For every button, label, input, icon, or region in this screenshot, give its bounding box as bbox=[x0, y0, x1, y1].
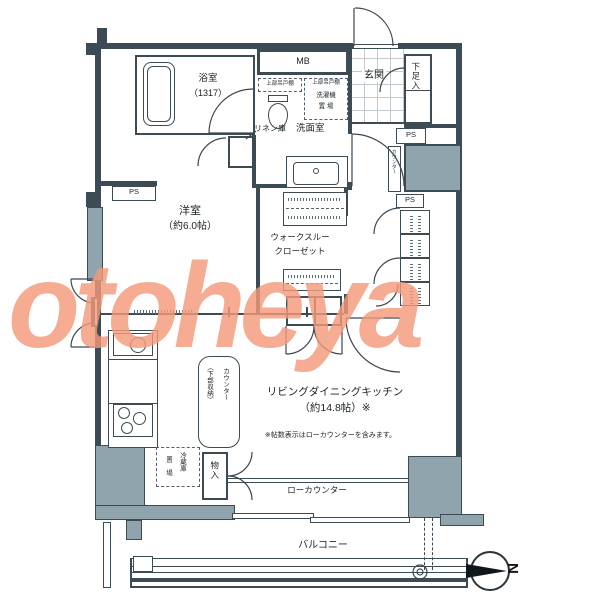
balcony-railing-cap bbox=[466, 558, 468, 588]
storage-door-arc bbox=[228, 476, 252, 500]
ps-west-label: PS bbox=[112, 188, 156, 197]
wall-stub bbox=[86, 43, 95, 55]
linen-label: リネン庫 bbox=[254, 124, 286, 133]
western-room-size: （約6.0帖） bbox=[140, 221, 240, 233]
storage-label: 物入 bbox=[209, 461, 219, 480]
entrance-label: 玄関 bbox=[362, 70, 386, 82]
linen-closet bbox=[228, 136, 254, 168]
window-sash bbox=[310, 517, 410, 523]
wall-stub bbox=[97, 28, 107, 45]
wall-segment bbox=[398, 43, 462, 49]
stove-burner bbox=[118, 407, 130, 419]
shoe-cabinet-label: 下足入 bbox=[410, 62, 420, 91]
balcony-railing bbox=[130, 566, 468, 567]
toilet-tank bbox=[268, 95, 288, 102]
floor-plan: 浴室 （1317） MB 上部吊戸棚 上部吊戸棚 洗濯機 置 場 リネン庫 洗面… bbox=[0, 0, 600, 600]
upper-cabinet-left-label: 上部吊戸棚 bbox=[258, 81, 302, 87]
ldk-label: リビングダイニングキッチン bbox=[240, 386, 430, 398]
entrance-tiles bbox=[352, 49, 404, 123]
linen-door-arc bbox=[198, 138, 226, 166]
structural-column bbox=[126, 520, 142, 540]
compass-icon: N bbox=[466, 552, 521, 590]
storage-door-arc bbox=[228, 452, 252, 476]
bathroom-size-label: （1317） bbox=[172, 88, 244, 98]
stove-burner bbox=[133, 412, 146, 425]
washer-label-1: 洗濯機 bbox=[304, 92, 348, 99]
balcony-railing bbox=[130, 558, 468, 559]
balcony-railing bbox=[130, 578, 468, 582]
low-counter-line bbox=[228, 478, 408, 479]
structural-column bbox=[95, 505, 235, 520]
balcony-railing bbox=[130, 586, 468, 588]
entrance-step-line bbox=[352, 122, 404, 124]
structural-column bbox=[404, 144, 462, 192]
balcony-railing-cap bbox=[130, 558, 132, 588]
mb-label: MB bbox=[277, 56, 329, 66]
balcony-side-wall bbox=[103, 522, 111, 588]
balcony-railing bbox=[130, 572, 468, 573]
structural-column bbox=[440, 514, 484, 526]
ps-upper-label: PS bbox=[396, 131, 426, 140]
wall-stub bbox=[86, 192, 95, 207]
compass-north-label: N bbox=[504, 563, 521, 574]
closet-cell bbox=[400, 210, 430, 234]
washer-label-2: 置 場 bbox=[304, 103, 348, 110]
low-counter-line bbox=[228, 482, 408, 483]
ps-lower-label: PS bbox=[396, 196, 424, 205]
watermark-text: otoheya bbox=[8, 237, 600, 376]
entrance-door-arc bbox=[355, 8, 393, 46]
fridge-label-2: 置 場 bbox=[164, 456, 171, 476]
drain-pipe-line bbox=[424, 518, 425, 570]
washroom-label: 洗面室 bbox=[296, 124, 325, 135]
bathroom-label: 浴室 bbox=[178, 74, 238, 85]
closet-shelf-upper bbox=[283, 192, 347, 226]
meter-counter-label: カウンター bbox=[390, 149, 396, 174]
drain-pipe-line bbox=[432, 518, 433, 570]
bathtub bbox=[143, 62, 175, 126]
ldk-size-label: （約14.8帖）※ bbox=[240, 402, 430, 414]
stove-burner bbox=[121, 422, 133, 434]
upper-cabinet-right-label: 上部吊戸棚 bbox=[304, 80, 348, 86]
balcony-hatch bbox=[133, 556, 153, 572]
balcony-label: バルコニー bbox=[268, 540, 378, 552]
structural-column bbox=[408, 456, 462, 518]
closet-cell-door-arc bbox=[374, 208, 400, 234]
washbasin-faucet bbox=[313, 168, 319, 174]
ldk-note: ※帖数表示はローカウンターを含みます。 bbox=[233, 432, 428, 440]
fridge-label-1: 冷蔵庫 bbox=[178, 452, 185, 472]
low-counter-label: ローカウンター bbox=[262, 486, 372, 496]
western-room-label: 洋室 bbox=[150, 205, 230, 218]
window-sash bbox=[232, 513, 314, 519]
